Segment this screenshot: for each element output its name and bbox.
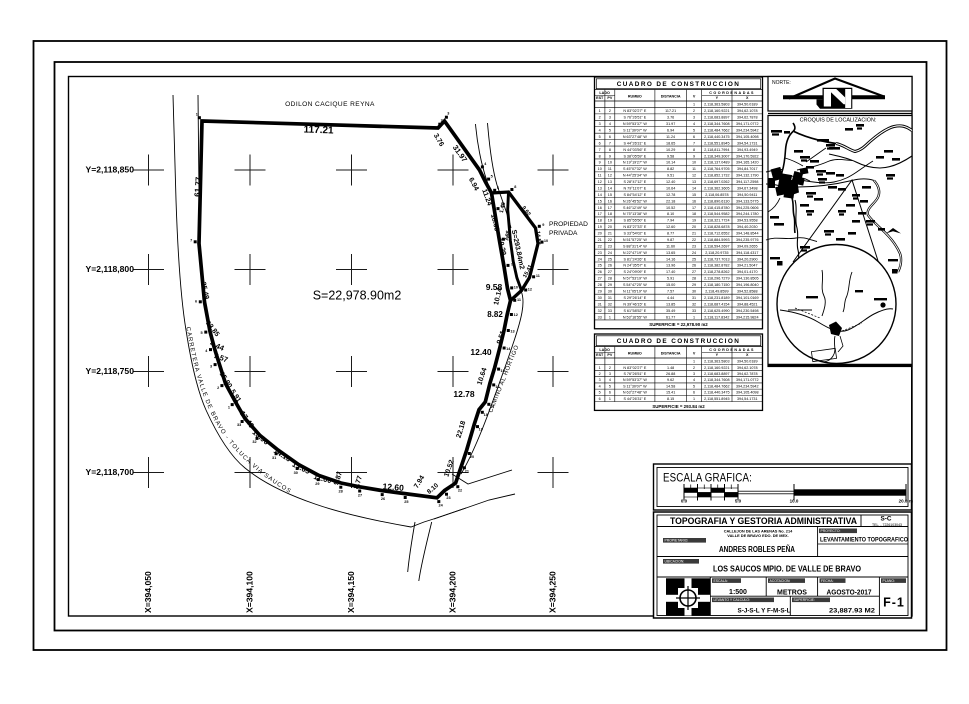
svg-text:S-J-S-L Y F-M-S-L: S-J-S-L Y F-M-S-L [738, 608, 791, 615]
svg-text:2,118,544.9582: 2,118,544.9582 [704, 212, 729, 216]
svg-text:LADO: LADO [599, 348, 610, 352]
svg-text:33: 33 [598, 315, 602, 319]
svg-text:13.85: 13.85 [666, 302, 675, 306]
svg-text:20: 20 [608, 225, 612, 229]
svg-text:12.40: 12.40 [470, 347, 492, 357]
svg-text:12.40: 12.40 [666, 180, 675, 184]
svg-text:22.18: 22.18 [666, 199, 675, 203]
svg-text:S 76°26'51" E: S 76°26'51" E [623, 372, 646, 376]
svg-text:31.97: 31.97 [451, 143, 469, 163]
svg-text:10.52: 10.52 [666, 206, 675, 210]
svg-text:Y=2,118,850: Y=2,118,850 [85, 165, 134, 175]
svg-text:2,118,231.8189: 2,118,231.8189 [704, 296, 729, 300]
svg-text:11: 11 [598, 174, 602, 178]
svg-text:ESCALA:: ESCALA: [714, 579, 728, 583]
svg-text:7.94: 7.94 [413, 474, 426, 489]
svg-text:16: 16 [608, 199, 612, 203]
svg-text:30: 30 [598, 296, 602, 300]
svg-text:5: 5 [599, 135, 601, 139]
svg-text:N 22°47'19" W: N 22°47'19" W [623, 251, 648, 255]
svg-text:14.58: 14.58 [534, 231, 541, 245]
svg-text:29: 29 [608, 283, 612, 287]
svg-text:394,225.0606: 394,225.0606 [736, 206, 759, 210]
svg-text:8: 8 [609, 148, 611, 152]
svg-text:5: 5 [609, 129, 611, 133]
svg-text:26: 26 [692, 264, 696, 268]
svg-text:30: 30 [608, 290, 612, 294]
svg-text:12: 12 [692, 174, 696, 178]
svg-text:16: 16 [598, 206, 602, 210]
svg-text:25: 25 [598, 264, 602, 268]
svg-text:13.65: 13.65 [666, 251, 675, 255]
svg-text:1: 1 [599, 366, 601, 370]
svg-text:394,62.7878: 394,62.7878 [737, 116, 758, 120]
svg-text:12: 12 [608, 174, 612, 178]
svg-text:12.78: 12.78 [453, 389, 475, 399]
svg-text:2,118,683.8897: 2,118,683.8897 [704, 116, 729, 120]
svg-text:N 59°53'37" W: N 59°53'37" W [623, 378, 648, 382]
svg-text:32: 32 [608, 302, 612, 306]
svg-text:8.82: 8.82 [667, 167, 674, 171]
svg-text:8.10: 8.10 [426, 482, 440, 496]
svg-text:10.29: 10.29 [666, 148, 675, 152]
svg-text:COORDENADAS: COORDENADAS [709, 91, 755, 95]
svg-text:27: 27 [358, 494, 362, 498]
svg-text:S 61°58'52" E: S 61°58'52" E [623, 309, 646, 313]
svg-text:394,53.9558: 394,53.9558 [737, 219, 758, 223]
svg-text:2,118,551.8945: 2,118,551.8945 [704, 141, 729, 145]
svg-text:2,118,137.0489: 2,118,137.0489 [704, 161, 729, 165]
svg-text:9.51: 9.51 [496, 330, 507, 345]
svg-text:2,118,06.8578: 2,118,06.8578 [705, 193, 728, 197]
svg-text:AGOSTO-2017: AGOSTO-2017 [827, 590, 872, 597]
svg-text:7.57: 7.57 [212, 351, 229, 364]
svg-text:10: 10 [608, 161, 612, 165]
svg-text:394,21.5047: 394,21.5047 [737, 264, 758, 268]
svg-text:10.14: 10.14 [666, 161, 675, 165]
svg-text:15.90: 15.90 [218, 371, 233, 390]
svg-text:Y=2,118,700: Y=2,118,700 [85, 467, 134, 477]
svg-text:S 44°26'31" E: S 44°26'31" E [623, 397, 646, 401]
svg-text:6.94: 6.94 [667, 129, 674, 133]
svg-text:31: 31 [608, 296, 612, 300]
svg-text:7.57: 7.57 [667, 290, 674, 294]
svg-text:28: 28 [598, 283, 602, 287]
svg-text:18.65: 18.65 [489, 213, 500, 232]
svg-text:2,118,440.3475: 2,118,440.3475 [704, 135, 729, 139]
svg-text:2: 2 [599, 116, 601, 120]
svg-text:N 39°46'15" E: N 39°46'15" E [623, 302, 647, 306]
svg-text:13: 13 [598, 186, 602, 190]
svg-text:24: 24 [692, 251, 696, 255]
svg-text:394,09.2655: 394,09.2655 [737, 244, 758, 248]
svg-text:1: 1 [228, 406, 230, 410]
svg-text:PROPIEDAD: PROPIEDAD [549, 221, 588, 228]
svg-text:2: 2 [609, 366, 611, 370]
svg-text:29: 29 [598, 290, 602, 294]
svg-text:RUMBO: RUMBO [628, 94, 642, 98]
svg-text:PLANO:: PLANO: [883, 579, 895, 583]
svg-text:394,50.0189: 394,50.0189 [737, 103, 758, 107]
svg-text:31: 31 [272, 456, 276, 460]
svg-text:14.16: 14.16 [666, 257, 675, 261]
svg-text:N 51°57'25" W: N 51°57'25" W [623, 238, 648, 242]
svg-text:S 29°26'14" E: S 29°26'14" E [623, 296, 646, 300]
svg-text:12.78: 12.78 [666, 193, 675, 197]
svg-text:12: 12 [528, 288, 532, 292]
svg-text:31.97: 31.97 [666, 122, 675, 126]
svg-text:7.94: 7.94 [667, 219, 674, 223]
svg-text:394,215.9824: 394,215.9824 [736, 315, 759, 319]
svg-text:7: 7 [693, 141, 695, 145]
svg-text:28: 28 [338, 490, 342, 494]
svg-text:2,118,697.0262: 2,118,697.0262 [704, 180, 729, 184]
svg-text:394,133.5775: 394,133.5775 [736, 199, 759, 203]
svg-text:S 84°54'12" E: S 84°54'12" E [623, 193, 646, 197]
svg-text:10: 10 [692, 161, 696, 165]
svg-text:5: 5 [693, 129, 695, 133]
svg-text:10.64: 10.64 [666, 186, 675, 190]
svg-text:23: 23 [692, 244, 696, 248]
svg-text:8.15: 8.15 [667, 397, 674, 401]
svg-text:15: 15 [692, 193, 696, 197]
svg-text:19: 19 [608, 219, 612, 223]
svg-text:5.91: 5.91 [667, 277, 674, 281]
svg-text:21: 21 [692, 232, 696, 236]
svg-text:S 24°09'09" E: S 24°09'09" E [623, 270, 646, 274]
svg-text:S 54°47'25" W: S 54°47'25" W [623, 283, 647, 287]
svg-text:18: 18 [484, 413, 488, 417]
svg-text:2,118,362.3605: 2,118,362.3605 [704, 186, 729, 190]
svg-text:ESCALA GRAFICA:: ESCALA GRAFICA: [663, 471, 752, 485]
svg-text:0.0: 0.0 [681, 499, 688, 504]
svg-text:5: 5 [201, 331, 203, 335]
svg-text:2,118,484.7662: 2,118,484.7662 [704, 129, 729, 133]
svg-text:17: 17 [608, 206, 612, 210]
svg-text:12: 12 [514, 313, 518, 317]
svg-text:2,118,321.7724: 2,118,321.7724 [704, 219, 729, 223]
svg-text:16: 16 [692, 199, 696, 203]
svg-text:PROPIETARIO:: PROPIETARIO: [665, 539, 689, 543]
svg-text:3: 3 [599, 378, 601, 382]
svg-text:394,20.2900: 394,20.2900 [737, 257, 758, 261]
svg-text:5: 5 [599, 391, 601, 395]
svg-text:394,118.4317: 394,118.4317 [736, 251, 758, 255]
svg-text:25: 25 [692, 257, 696, 261]
svg-text:UBICACION:: UBICACION: [665, 560, 685, 564]
svg-text:35.49: 35.49 [199, 281, 210, 300]
svg-text:4.44: 4.44 [667, 296, 674, 300]
svg-text:23,887.93 M2: 23,887.93 M2 [829, 608, 875, 615]
svg-text:8.82: 8.82 [487, 310, 503, 319]
svg-text:394,54.1731: 394,54.1731 [737, 397, 758, 401]
svg-text:2,118,764.9705: 2,118,764.9705 [704, 167, 729, 171]
svg-text:14: 14 [608, 186, 612, 190]
svg-text:8.10: 8.10 [667, 212, 674, 216]
svg-text:2,118,363.5803: 2,118,363.5803 [704, 103, 729, 107]
svg-text:6: 6 [609, 391, 611, 395]
svg-text:11: 11 [517, 298, 521, 302]
svg-text:2,118,890.6130: 2,118,890.6130 [704, 199, 729, 203]
svg-text:3: 3 [693, 372, 695, 376]
svg-text:20: 20 [470, 455, 474, 459]
svg-text:2,118,382.8782: 2,118,382.8782 [704, 264, 729, 268]
svg-text:394,117.2598: 394,117.2598 [736, 180, 758, 184]
svg-text:5.0: 5.0 [735, 499, 742, 504]
svg-text:DISTANCIA: DISTANCIA [661, 94, 681, 98]
svg-text:S 28°47'12" E: S 28°47'12" E [623, 180, 646, 184]
svg-text:N 53°16'55" W: N 53°16'55" W [623, 315, 648, 319]
svg-text:9: 9 [693, 154, 695, 158]
svg-text:18: 18 [692, 212, 696, 216]
svg-text:12.60: 12.60 [382, 481, 404, 493]
svg-text:6: 6 [599, 141, 601, 145]
svg-text:2,118,20.9735: 2,118,20.9735 [705, 251, 728, 255]
svg-text:LOS SAUCOS MPIO. DE VALLE DE: LOS SAUCOS MPIO. DE VALLE DE BRAVO [713, 565, 862, 574]
svg-text:9.87: 9.87 [667, 238, 674, 242]
svg-text:17: 17 [598, 212, 602, 216]
svg-text:29: 29 [315, 482, 319, 486]
svg-text:10: 10 [514, 286, 518, 290]
svg-text:4: 4 [484, 162, 487, 166]
svg-text:S 81°24'26" E: S 81°24'26" E [623, 257, 646, 261]
svg-text:33: 33 [237, 423, 241, 427]
svg-text:1: 1 [196, 113, 198, 117]
svg-text:2: 2 [217, 386, 219, 390]
svg-text:10: 10 [598, 167, 602, 171]
svg-text:11: 11 [608, 167, 612, 171]
svg-text:15: 15 [500, 369, 504, 373]
svg-text:24: 24 [438, 504, 443, 508]
svg-text:394,84.7017: 394,84.7017 [737, 167, 758, 171]
svg-text:22: 22 [608, 238, 612, 242]
svg-text:S 88°31'14" W: S 88°31'14" W [623, 244, 647, 248]
svg-text:X=394,150: X=394,150 [346, 571, 356, 613]
svg-text:9.58: 9.58 [667, 154, 674, 158]
svg-text:5: 5 [491, 174, 493, 178]
svg-text:16: 16 [495, 385, 499, 389]
svg-text:394,171.0772: 394,171.0772 [736, 122, 759, 126]
svg-text:30: 30 [294, 471, 298, 475]
svg-text:2,118,484.7662: 2,118,484.7662 [704, 384, 729, 388]
svg-text:26: 26 [598, 270, 602, 274]
svg-text:2,118,625.4990: 2,118,625.4990 [704, 309, 729, 313]
svg-text:15.00: 15.00 [666, 283, 675, 287]
svg-text:2: 2 [599, 372, 601, 376]
svg-text:RUMBO: RUMBO [628, 351, 642, 355]
svg-text:22: 22 [692, 238, 696, 242]
svg-text:394,52.8588: 394,52.8588 [737, 290, 758, 294]
svg-text:NORTE:: NORTE: [772, 80, 791, 86]
svg-text:394,234.5942: 394,234.5942 [736, 129, 759, 133]
svg-text:TOPOGRAFIA Y GESTORIA ADMINIST: TOPOGRAFIA Y GESTORIA ADMINISTRATIVA [670, 516, 857, 526]
svg-text:N 19°19'27" W: N 19°19'27" W [623, 161, 648, 165]
svg-text:1: 1 [693, 103, 695, 107]
svg-text:METROS: METROS [777, 589, 807, 596]
svg-text:25: 25 [404, 500, 408, 504]
svg-text:1: 1 [599, 109, 601, 113]
svg-text:20: 20 [692, 225, 696, 229]
svg-text:7: 7 [609, 141, 611, 145]
svg-text:6: 6 [497, 186, 499, 190]
svg-text:31: 31 [598, 302, 602, 306]
svg-text:9: 9 [542, 223, 544, 227]
svg-text:13: 13 [692, 180, 696, 184]
svg-text:X=394,100: X=394,100 [245, 571, 255, 613]
svg-text:2,118,594.2697: 2,118,594.2697 [704, 244, 729, 248]
svg-text:20.0: 20.0 [899, 499, 908, 504]
svg-text:Y=2,118,800: Y=2,118,800 [85, 264, 134, 274]
svg-text:4: 4 [693, 378, 695, 382]
svg-text:21: 21 [608, 232, 612, 236]
svg-text:10.64: 10.64 [477, 367, 489, 386]
svg-text:13.96: 13.96 [666, 264, 675, 268]
svg-text:394,132.1790: 394,132.1790 [736, 174, 759, 178]
svg-text:394,62.1078: 394,62.1078 [737, 366, 758, 370]
svg-text:8: 8 [599, 154, 601, 158]
svg-text:15.41: 15.41 [666, 391, 675, 395]
svg-text:15: 15 [598, 199, 602, 203]
svg-text:394,234.5942: 394,234.5942 [736, 384, 759, 388]
svg-text:22.18: 22.18 [456, 420, 468, 439]
svg-text:CROQUIS DE LOCALIZACION:: CROQUIS DE LOCALIZACION: [800, 118, 877, 124]
svg-text:2: 2 [441, 119, 443, 123]
svg-text:394,105.4098: 394,105.4098 [736, 135, 759, 139]
svg-text:11: 11 [692, 167, 696, 171]
svg-text:6.94: 6.94 [467, 177, 480, 192]
svg-text:S 38°05'59" E: S 38°05'59" E [623, 154, 646, 158]
svg-text:5: 5 [693, 384, 695, 388]
svg-text:394,01.4170: 394,01.4170 [737, 270, 758, 274]
svg-text:394,165.1420: 394,165.1420 [736, 161, 759, 165]
svg-text:N 44°25'34" W: N 44°25'34" W [623, 174, 648, 178]
svg-text:1:500: 1:500 [729, 589, 747, 596]
svg-text:3: 3 [447, 112, 449, 116]
svg-text:2: 2 [693, 366, 695, 370]
svg-text:30: 30 [692, 290, 696, 294]
svg-text:2,118,415.8780: 2,118,415.8780 [704, 206, 729, 210]
svg-text:2,118,117.8342: 2,118,117.8342 [704, 315, 729, 319]
svg-text:2: 2 [693, 109, 695, 113]
svg-text:394,101.0169: 394,101.0169 [736, 296, 759, 300]
svg-text:14: 14 [692, 186, 696, 190]
svg-text:13: 13 [608, 180, 612, 184]
svg-text:DISTANCIA: DISTANCIA [661, 351, 681, 355]
svg-text:394,130.8505: 394,130.8505 [736, 277, 759, 281]
svg-text:7: 7 [599, 148, 601, 152]
svg-text:4: 4 [609, 122, 611, 126]
svg-text:27: 27 [692, 270, 696, 274]
svg-text:2,118,180.7150: 2,118,180.7150 [704, 283, 729, 287]
svg-text:4: 4 [205, 349, 208, 353]
svg-text:3: 3 [599, 122, 601, 126]
svg-text:ODILON CACIQUE REYNA: ODILON CACIQUE REYNA [285, 101, 375, 108]
svg-text:N 59°53'37" W: N 59°53'37" W [623, 122, 648, 126]
svg-text:S 33°54'02" E: S 33°54'02" E [623, 232, 646, 236]
svg-text:12.60: 12.60 [666, 225, 675, 229]
svg-text:2,118,296.7279: 2,118,296.7279 [704, 277, 729, 281]
svg-text:26.88: 26.88 [666, 372, 675, 376]
svg-text:VALLE DE BRAVO EDO. DE MEX.: VALLE DE BRAVO EDO. DE MEX. [727, 533, 788, 538]
svg-text:21: 21 [598, 238, 602, 242]
svg-text:EST: EST [596, 353, 604, 357]
svg-text:N 11°05'19" W: N 11°05'19" W [623, 290, 647, 294]
svg-text:394,170.5922: 394,170.5922 [736, 154, 759, 158]
svg-text:17: 17 [692, 206, 696, 210]
svg-text:394,67.3498: 394,67.3498 [737, 186, 758, 190]
svg-text:S 44°26'31" E: S 44°26'31" E [623, 141, 646, 145]
svg-text:117.21: 117.21 [665, 109, 676, 113]
svg-text:2,118,852.1732: 2,118,852.1732 [704, 174, 729, 178]
svg-text:35.49: 35.49 [666, 309, 675, 313]
svg-text:10: 10 [544, 239, 548, 243]
svg-text:S 11°30'07" W: S 11°30'07" W [623, 384, 647, 388]
svg-text:9: 9 [609, 154, 611, 158]
svg-text:2,118,278.8262: 2,118,278.8262 [704, 270, 729, 274]
svg-text:17: 17 [490, 405, 494, 409]
svg-text:ACOTACION:: ACOTACION: [770, 579, 791, 583]
svg-text:2: 2 [609, 109, 611, 113]
svg-text:LADO: LADO [599, 91, 610, 95]
svg-text:4: 4 [599, 129, 601, 133]
svg-text:1.48: 1.48 [667, 366, 674, 370]
svg-text:6: 6 [195, 300, 197, 304]
svg-text:4: 4 [599, 384, 601, 388]
svg-text:S 76°26'51" E: S 76°26'51" E [623, 116, 646, 120]
svg-text:LEVANTO Y CALCULO:: LEVANTO Y CALCULO: [714, 598, 751, 602]
svg-text:23: 23 [598, 251, 602, 255]
svg-text:10.0: 10.0 [790, 499, 799, 504]
svg-text:11: 11 [536, 274, 540, 278]
svg-text:394,54.1731: 394,54.1731 [737, 141, 758, 145]
svg-text:394,50.0189: 394,50.0189 [737, 360, 758, 364]
svg-text:27: 27 [598, 277, 602, 281]
svg-text:23: 23 [446, 496, 450, 500]
svg-text:EST: EST [596, 96, 604, 100]
svg-text:394,50.9411: 394,50.9411 [737, 193, 757, 197]
svg-text:9.62: 9.62 [667, 378, 674, 382]
svg-text:11.24: 11.24 [666, 135, 675, 139]
svg-text:8: 8 [693, 148, 695, 152]
svg-text:394,196.8040: 394,196.8040 [736, 283, 759, 287]
svg-text:6: 6 [693, 135, 695, 139]
svg-text:S 11°30'07" W: S 11°30'07" W [623, 129, 647, 133]
svg-text:14.16: 14.16 [272, 446, 293, 464]
svg-text:X=394,250: X=394,250 [548, 571, 558, 613]
svg-text:2,118,349.3007: 2,118,349.3007 [704, 154, 729, 158]
svg-text:394,148.8544: 394,148.8544 [736, 232, 759, 236]
svg-text:ANDRES ROBLES PEÑA: ANDRES ROBLES PEÑA [719, 545, 795, 554]
svg-text:394,93.4949: 394,93.4949 [737, 148, 758, 152]
svg-text:3: 3 [609, 116, 611, 120]
svg-text:F-1: F-1 [883, 596, 905, 610]
svg-text:2,118,49.8599: 2,118,49.8599 [705, 290, 728, 294]
svg-text:32: 32 [692, 302, 696, 306]
svg-text:N 24°35'57" E: N 24°35'57" E [623, 264, 647, 268]
svg-text:SUPERFICIE:: SUPERFICIE: [794, 598, 815, 602]
svg-text:TEL. - 7226103043: TEL. - 7226103043 [872, 523, 902, 527]
svg-text:SUPERFICIE = 22,978.90 m2: SUPERFICIE = 22,978.90 m2 [649, 322, 708, 327]
svg-text:18: 18 [598, 219, 602, 223]
svg-text:LEVANTAMIENTO TOPOGRAFICO: LEVANTAMIENTO TOPOGRAFICO [820, 537, 908, 544]
svg-text:24: 24 [608, 251, 612, 255]
svg-text:2,118,344.7608: 2,118,344.7608 [704, 122, 729, 126]
svg-text:6: 6 [609, 135, 611, 139]
svg-text:CUADRO DE CONSTRUCCION: CUADRO DE CONSTRUCCION [617, 81, 740, 88]
svg-text:2,118,828.6878: 2,118,828.6878 [704, 225, 729, 229]
svg-text:18: 18 [608, 212, 612, 216]
svg-text:PRIVADA: PRIVADA [549, 230, 578, 237]
